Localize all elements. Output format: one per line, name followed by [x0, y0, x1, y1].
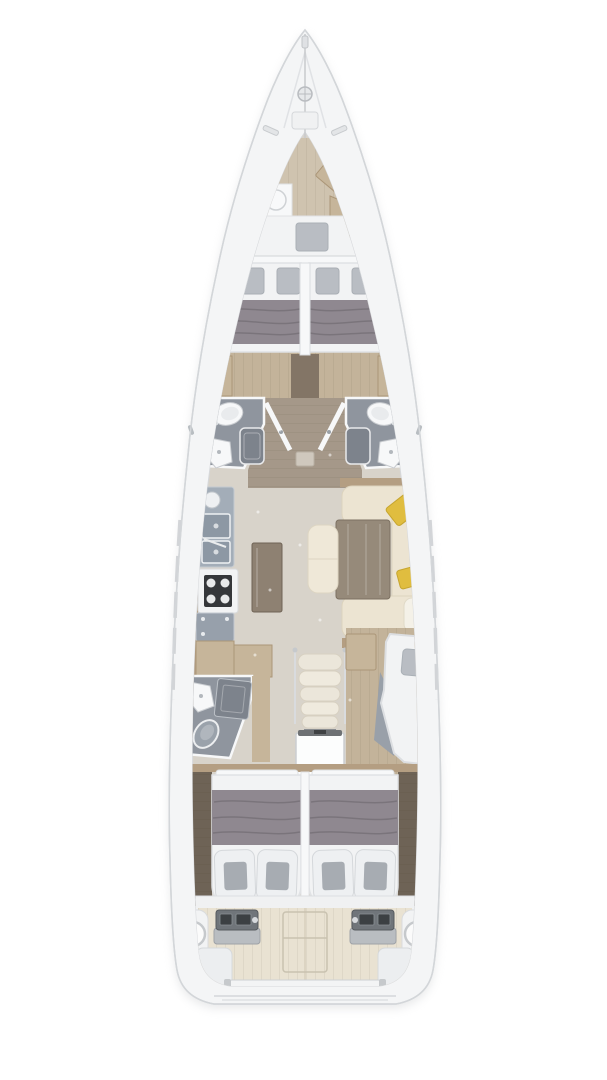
shower-tray-icon — [346, 428, 370, 464]
instrument-screen — [236, 914, 251, 925]
galley-cabinet — [196, 641, 234, 677]
cockpit-coaming — [186, 896, 424, 910]
floor-plan-svg — [0, 0, 607, 1080]
galley-lower-counter — [196, 613, 234, 641]
instrument-screen — [378, 914, 390, 925]
drain — [214, 524, 219, 529]
stair-step — [301, 702, 339, 715]
console-knob — [252, 917, 258, 923]
burner — [221, 595, 230, 604]
handle — [201, 632, 205, 636]
floor-hatch — [296, 452, 314, 466]
burner — [207, 595, 216, 604]
instrument-screen — [359, 914, 374, 925]
day-head — [186, 676, 270, 762]
deck-hatch — [292, 112, 318, 129]
drain — [214, 550, 219, 555]
cabin-cabinet — [346, 634, 376, 670]
yacht-floor-plan — [0, 0, 607, 1080]
cockpit — [180, 896, 430, 990]
pillow-pad — [224, 862, 248, 891]
fwd-walkway — [291, 354, 319, 400]
aft-divider-wall — [301, 772, 309, 906]
galley-cabinet — [234, 645, 272, 677]
pillow-pad — [363, 862, 387, 891]
pillow — [277, 268, 300, 294]
salon-table — [336, 520, 390, 599]
fwd-divider-wall — [300, 263, 310, 355]
bow-fitting — [302, 36, 308, 48]
crew-pillow — [296, 223, 328, 251]
hatch-latch — [314, 730, 326, 734]
handle — [225, 617, 229, 621]
stair-step — [302, 716, 338, 728]
drain — [389, 450, 393, 454]
handle — [201, 617, 205, 621]
pillow-pad — [265, 862, 289, 891]
burner — [221, 579, 230, 588]
aft-cabins — [179, 764, 434, 906]
stair-step — [298, 654, 342, 670]
stair-step — [300, 687, 340, 701]
drain — [199, 694, 203, 698]
day-head-door — [214, 678, 252, 719]
drain — [217, 450, 221, 454]
console-knob — [352, 917, 358, 923]
instrument-screen — [220, 914, 232, 925]
stair-step — [299, 671, 341, 686]
door-handle — [327, 430, 331, 434]
pillow — [316, 268, 339, 294]
day-head-trim — [252, 676, 270, 762]
rail-post — [293, 648, 298, 653]
burner — [207, 579, 216, 588]
pillow-pad — [322, 862, 346, 891]
